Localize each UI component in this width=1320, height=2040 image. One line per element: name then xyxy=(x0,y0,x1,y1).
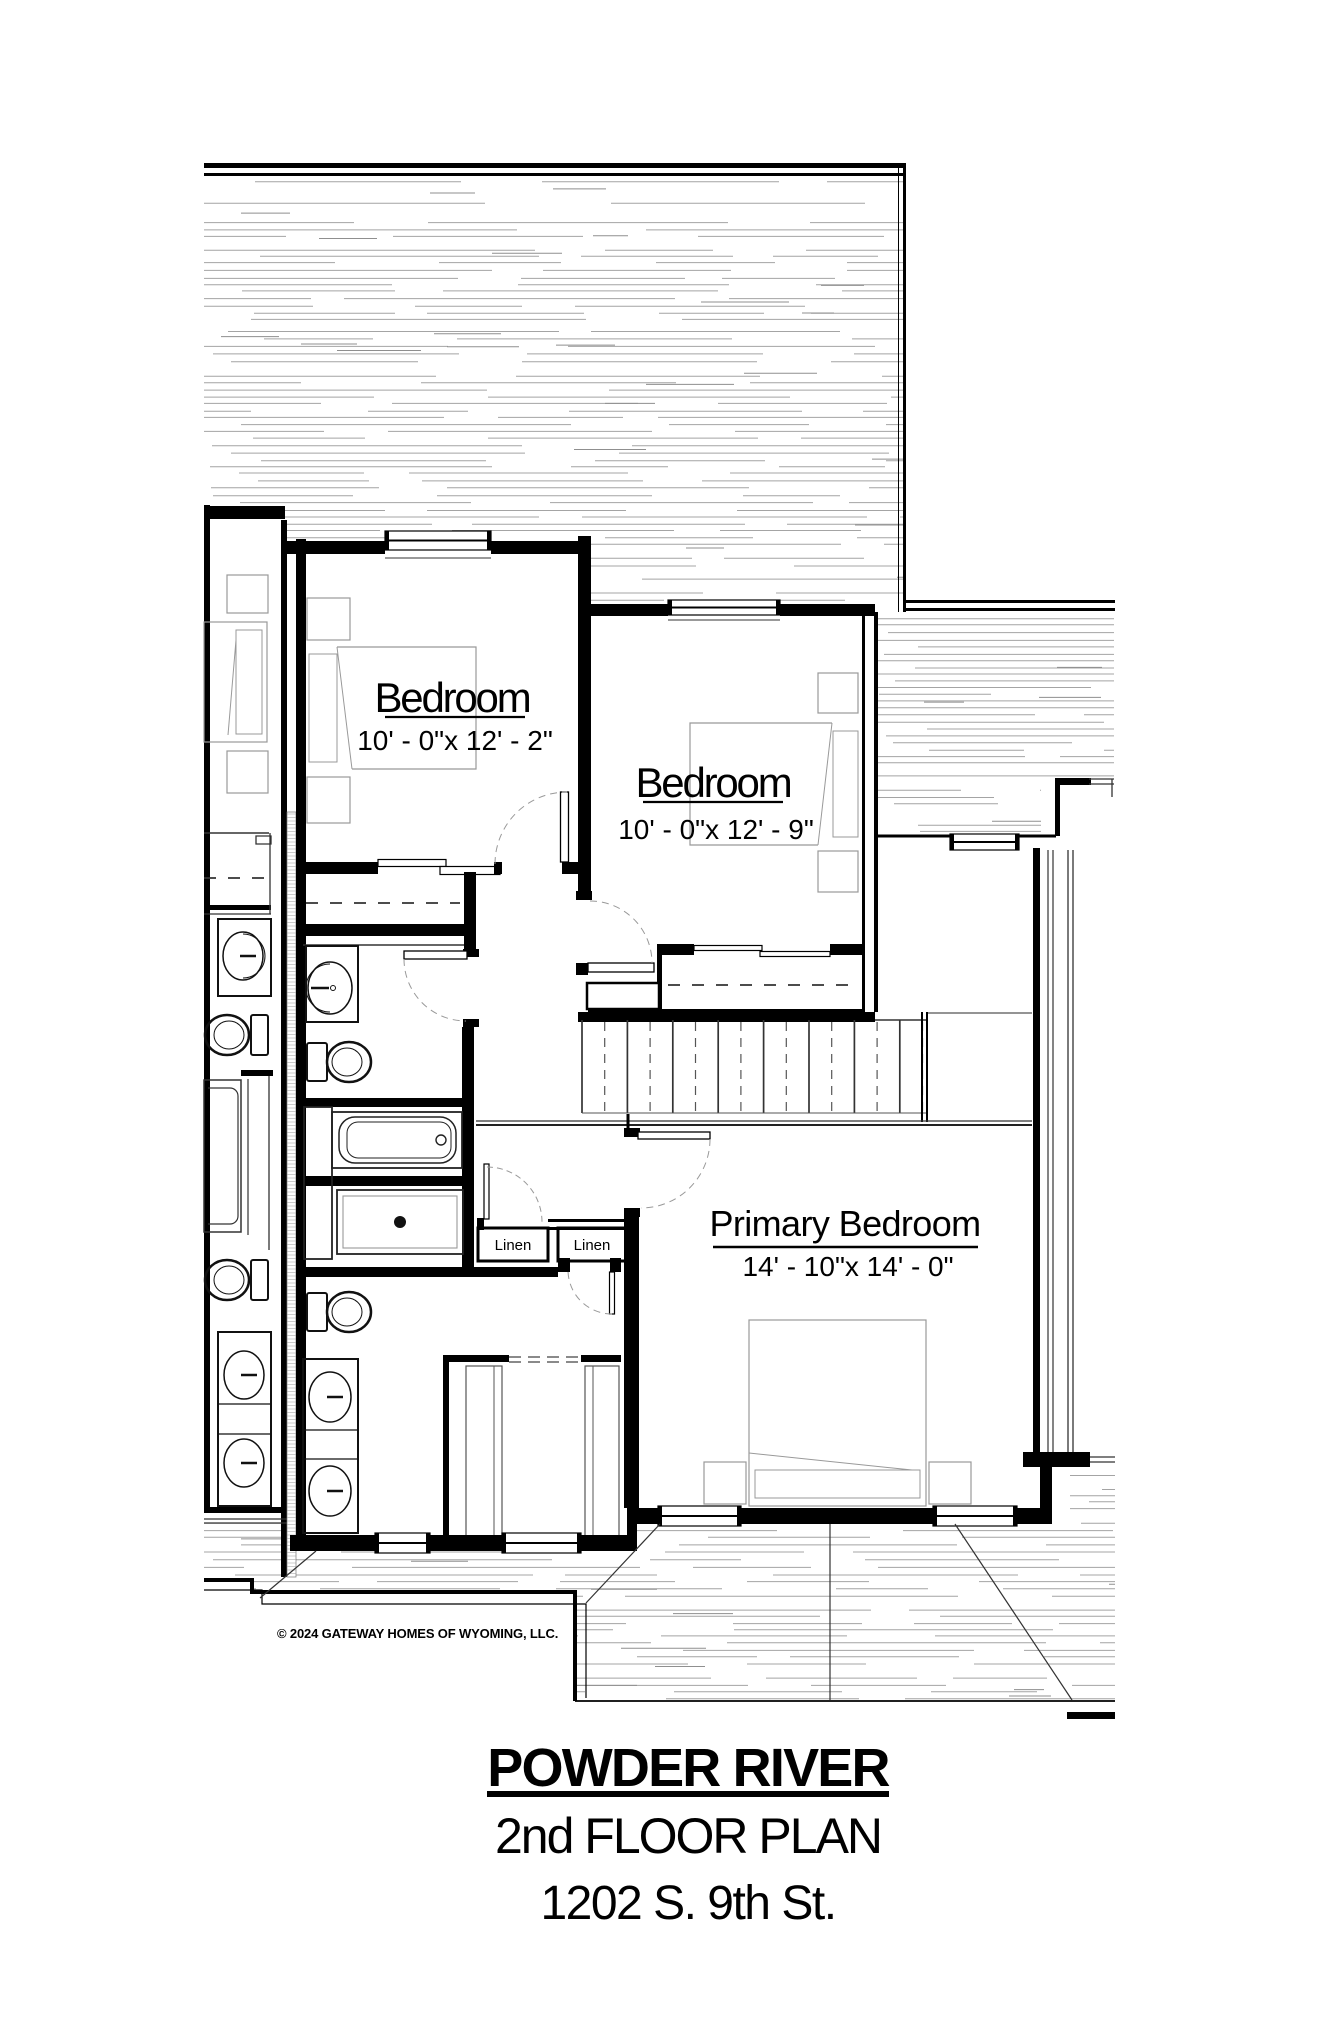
svg-text:10' - 0"x 12' - 9": 10' - 0"x 12' - 9" xyxy=(618,814,814,845)
svg-text:Linen: Linen xyxy=(495,1237,532,1254)
svg-text:Linen: Linen xyxy=(574,1237,611,1254)
svg-text:Bedroom: Bedroom xyxy=(374,674,529,721)
svg-text:2nd FLOOR PLAN: 2nd FLOOR PLAN xyxy=(495,1808,881,1864)
svg-text:POWDER RIVER: POWDER RIVER xyxy=(487,1738,889,1798)
svg-text:Primary Bedroom: Primary Bedroom xyxy=(709,1203,980,1244)
svg-text:1202 S. 9th St.: 1202 S. 9th St. xyxy=(540,1877,835,1930)
svg-text:14' - 10"x 14' - 0": 14' - 10"x 14' - 0" xyxy=(742,1251,953,1282)
svg-text:10' - 0"x 12' - 2": 10' - 0"x 12' - 2" xyxy=(357,725,553,756)
svg-text:Bedroom: Bedroom xyxy=(635,759,790,806)
svg-text:© 2024 GATEWAY HOMES OF WYOMIN: © 2024 GATEWAY HOMES OF WYOMING, LLC. xyxy=(277,1626,558,1641)
